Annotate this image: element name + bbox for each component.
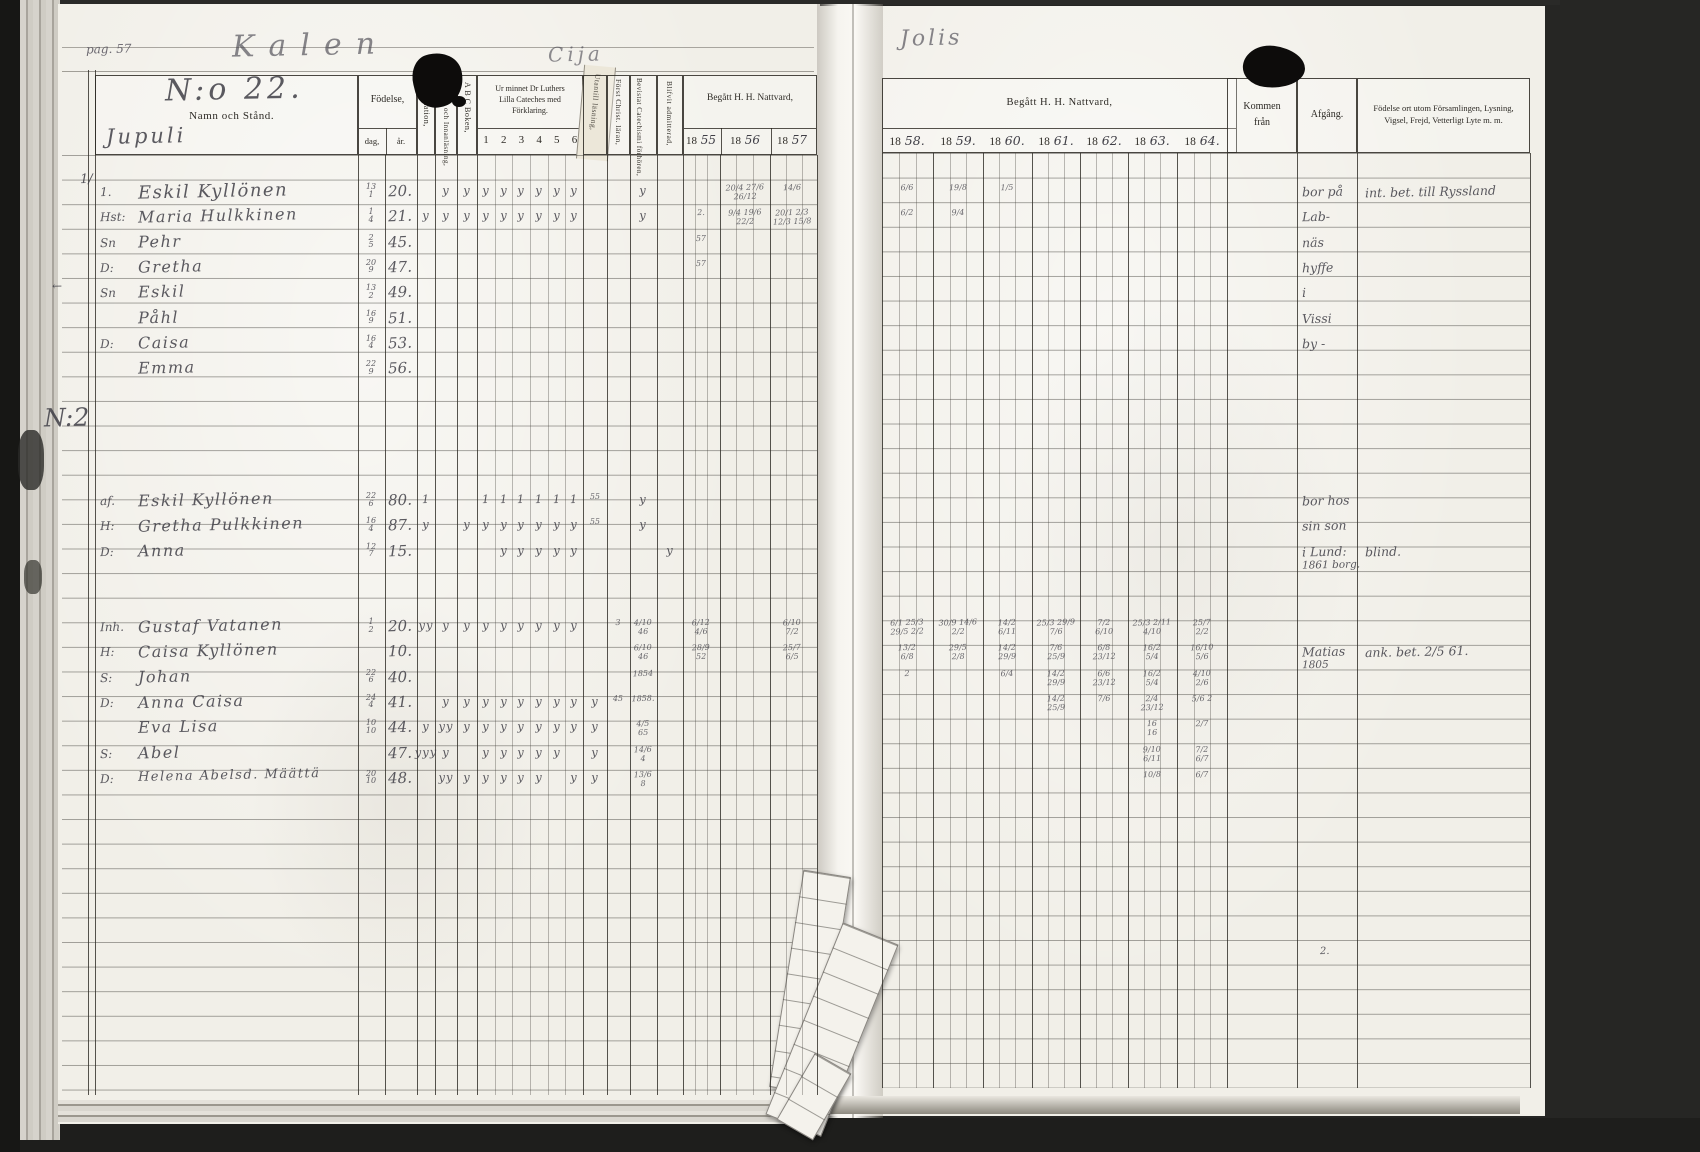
right-communion-year-script: 58. <box>901 133 925 148</box>
communion-date: 14/229/9 <box>1032 669 1081 688</box>
check-mark: y <box>535 183 543 197</box>
kommen-label-1: Kommen <box>1243 101 1280 112</box>
right-page-bottom-edge <box>820 1096 1520 1114</box>
village-name: Jupuli <box>106 123 187 149</box>
communion-date: 6/4 <box>983 669 1031 679</box>
afgang-label: Afgång. <box>1311 109 1344 120</box>
person-prefix: D: <box>100 696 114 710</box>
right-communion-year-script: 62. <box>1098 133 1122 148</box>
birth-day-value: 12 <box>368 618 373 633</box>
person-name: Påhl <box>138 307 179 327</box>
person-name: Caisa Kyllönen <box>138 640 279 662</box>
admitted-label: Blifvit admitterad, <box>665 81 674 146</box>
check-mark: y <box>570 770 578 784</box>
check-mark: y <box>500 694 508 708</box>
check-mark: y <box>442 618 450 632</box>
communion-date: 13/26/8 <box>883 643 932 662</box>
kommen-label-2: från <box>1254 117 1270 128</box>
margin-mark: N:2 <box>44 403 90 433</box>
communion-date: 6/6 <box>883 183 931 193</box>
birth-year-value: 41. <box>388 692 412 711</box>
communion-date: 20/4 27/626/12 <box>721 183 770 202</box>
birth-day-value: 229 <box>366 360 376 375</box>
check-mark: y <box>482 694 490 708</box>
birth-label: Födelse, <box>371 94 405 105</box>
afgang-note-2: 1805 <box>1302 659 1329 672</box>
check-mark: y <box>500 744 508 758</box>
afgang-note: Vissi <box>1302 310 1332 326</box>
catechism-subcolumn-number: 6 <box>572 134 578 146</box>
birth-year-value: 20. <box>388 182 412 201</box>
afgang-note: bor hos <box>1302 493 1350 509</box>
communion-date: 14/26/11 <box>983 618 1032 637</box>
person-prefix: D: <box>100 544 114 558</box>
check-mark: y <box>553 719 561 733</box>
birth-column-header: Födelse, dag, år. <box>358 75 417 155</box>
column-line <box>477 155 478 1095</box>
communion-date: 1616 <box>1128 719 1177 738</box>
check-mark: y <box>535 618 543 632</box>
subcolumn-line <box>565 155 566 1095</box>
communion-date: 7/26/10 <box>1080 618 1129 637</box>
column-line <box>385 155 386 1095</box>
column-line <box>88 70 89 1095</box>
check-mark: y <box>463 719 471 733</box>
afgang-note: bor på <box>1302 184 1343 200</box>
person-name: Johan <box>138 666 192 686</box>
check-mark: 1 <box>535 492 544 506</box>
check-mark: y <box>570 183 578 197</box>
left-communion-year: 18 57 <box>777 133 807 147</box>
person-prefix: S: <box>100 670 113 684</box>
check-mark: y <box>500 719 508 733</box>
right-communion-year: 18 64. <box>1184 133 1219 148</box>
right-communion-year: 18 62. <box>1086 133 1121 148</box>
communion-date: 55 <box>578 518 612 528</box>
right-communion-year: 18 59. <box>940 133 975 148</box>
birth-year-value: 56. <box>388 359 412 378</box>
check-mark: y <box>535 770 543 784</box>
afgang-note: Matias <box>1302 644 1345 660</box>
birth-day-value: 25 <box>368 234 373 249</box>
birth-day-label: dag, <box>365 136 379 146</box>
birth-year-value: 87. <box>388 516 412 535</box>
left-page <box>58 4 820 1124</box>
check-mark: y <box>463 618 471 632</box>
first-christ-column-header: Först Christ. läran, <box>607 75 630 155</box>
check-mark: y <box>517 719 525 733</box>
catechism-subcolumn-number: 3 <box>519 134 525 146</box>
birth-year-value: 44. <box>388 718 412 737</box>
check-mark: y <box>591 719 599 733</box>
check-mark: 1 <box>422 492 431 506</box>
communion-date: 9/4 19/622/2 <box>721 208 770 227</box>
person-prefix: Sn <box>100 286 116 300</box>
catechism-subcolumn-number: 4 <box>536 134 542 146</box>
column-line <box>1227 153 1228 1088</box>
left-communion-year: 18 55 <box>686 133 716 147</box>
check-mark: 1 <box>553 492 562 506</box>
communion-date: 30/9 14/62/2 <box>934 618 983 637</box>
person-prefix: H: <box>100 645 115 659</box>
subcolumn-line <box>530 155 531 1095</box>
person-name: Eva Lisa <box>138 716 219 737</box>
column-line <box>95 70 96 1095</box>
memory-column-header <box>583 75 607 155</box>
right-communion-year-script: 60. <box>1001 133 1025 148</box>
remark-note: blind. <box>1365 543 1401 559</box>
left-page-bottom-edge <box>58 1100 820 1122</box>
name-column-label: Namn och Stånd. <box>189 110 274 122</box>
check-mark: yy <box>418 618 433 633</box>
check-mark: y <box>535 542 543 556</box>
check-mark: y <box>422 719 430 733</box>
column-line <box>817 155 818 1095</box>
attended-label: Bevistat Catechismi förhören, <box>635 78 643 176</box>
birth-day-value: 14 <box>368 208 373 223</box>
check-mark: y <box>482 618 490 632</box>
communion-date: 20/1 2/312/3 15/8 <box>768 208 817 227</box>
person-name: Gretha Pulkkinen <box>138 514 304 536</box>
right-communion-year-script: 64. <box>1196 133 1220 148</box>
check-mark: y <box>553 618 561 632</box>
margin-mark: ← <box>52 279 62 293</box>
communion-date: 6/7 <box>1178 770 1226 780</box>
check-mark: y <box>463 183 471 197</box>
column-line <box>583 155 584 1095</box>
check-mark: y <box>517 183 525 197</box>
birth-year-value: 48. <box>388 768 412 787</box>
catechism-subcolumn-number: 2 <box>501 134 507 146</box>
subcolumn-line <box>512 155 513 1095</box>
column-line <box>457 155 458 1095</box>
check-mark: y <box>591 694 599 708</box>
birth-year-value: 80. <box>388 491 412 510</box>
page-stack-notch <box>18 430 44 490</box>
admitted-column-header: Blifvit admitterad, <box>657 75 683 155</box>
birth-year-value: 53. <box>388 333 412 352</box>
attended-column-header: Bevistat Catechismi förhören, <box>630 75 657 155</box>
check-mark: y <box>482 719 490 733</box>
check-mark: y <box>570 542 578 556</box>
afgang-note: i Lund: <box>1302 543 1347 559</box>
check-mark: y <box>482 744 490 758</box>
person-prefix: af. <box>100 494 115 508</box>
right-communion-year: 18 58. <box>889 133 924 148</box>
column-line <box>1297 153 1298 1088</box>
person-name: Gretha <box>138 256 204 276</box>
left-communion-year-script: 55 <box>697 133 716 147</box>
page-stack-notch2 <box>24 560 42 594</box>
remark-note: int. bet. till Ryssland <box>1365 183 1496 201</box>
subcolumn-line <box>495 155 496 1095</box>
communion-date: 6/124/6 <box>677 618 726 637</box>
person-prefix: D: <box>100 337 114 351</box>
check-mark: y <box>535 517 543 531</box>
communion-date: 14/64 <box>626 745 661 763</box>
abc-label: A B C Boken, <box>463 82 472 133</box>
communion-date: 13/68 <box>626 770 661 788</box>
communion-date: 16/25/4 <box>1128 669 1177 688</box>
check-mark: y <box>666 542 674 556</box>
person-prefix: Hst: <box>100 210 126 225</box>
scanned-parish-register: pag. 57 Kalen Cija Jolis Namn och Stånd.… <box>0 0 1700 1152</box>
birth-year-value: 20. <box>388 617 412 636</box>
check-mark: y <box>570 517 578 531</box>
birth-year-value: 45. <box>388 232 412 251</box>
birth-year-label: år. <box>397 136 405 146</box>
communion-date: 1854 <box>626 669 660 679</box>
communion-date: 6/823/12 <box>1080 643 1129 662</box>
communion-date: 1/5 <box>983 183 1031 193</box>
communion-date: 7/6 <box>1080 694 1128 704</box>
check-mark: y <box>639 492 647 506</box>
check-mark: y <box>500 183 508 197</box>
notes-label-2: Vigsel, Frejd, Vetterligt Lyte m. m. <box>1384 115 1503 125</box>
birth-year-value: 47. <box>388 743 412 762</box>
person-name: Pehr <box>138 231 182 251</box>
check-mark: y <box>517 744 525 758</box>
birth-day-value: 131 <box>366 183 376 198</box>
check-mark: y <box>535 719 543 733</box>
birth-day-value: 127 <box>366 543 376 558</box>
check-mark: y <box>442 744 450 758</box>
check-mark: y <box>500 208 508 222</box>
person-name: Eskil <box>138 282 186 302</box>
person-prefix: Sn <box>100 235 116 249</box>
check-mark: y <box>535 208 543 222</box>
check-mark: y <box>422 208 430 222</box>
communion-date: 29/52/8 <box>934 643 983 662</box>
right-communion-year-script: 59. <box>952 133 976 148</box>
check-mark: y <box>553 694 561 708</box>
check-mark: y <box>500 517 508 531</box>
check-mark: y <box>517 618 525 632</box>
check-mark: y <box>553 183 561 197</box>
left-communion-year: 18 56 <box>730 133 760 147</box>
birth-day-value: 1010 <box>366 719 376 734</box>
check-mark: y <box>535 694 543 708</box>
right-communion-year: 18 60. <box>989 133 1024 148</box>
check-mark: y <box>463 517 471 531</box>
right-communion-year-script: 61. <box>1050 133 1074 148</box>
catechism-label-1: Ur minnet Dr Luthers <box>495 84 565 93</box>
right-communion-year-script: 63. <box>1146 133 1170 148</box>
person-name: Anna <box>138 540 186 560</box>
check-mark: y <box>591 770 599 784</box>
check-mark: y <box>482 517 490 531</box>
check-mark: yy <box>438 719 453 734</box>
check-mark: y <box>442 183 450 197</box>
notes-column-header: Födelse ort utom Församlingen, Lysning, … <box>1357 78 1530 153</box>
check-mark: y <box>442 208 450 222</box>
left-communion-year-script: 56 <box>741 133 760 147</box>
check-mark: y <box>553 542 561 556</box>
check-mark: y <box>570 719 578 733</box>
communion-date: 4/1046 <box>626 618 661 636</box>
check-mark: y <box>553 517 561 531</box>
communion-date: 19/8 <box>934 183 982 193</box>
subcolumn-line <box>736 155 737 1095</box>
left-communion-label: Begått H. H. Nattvard, <box>707 93 793 103</box>
page-title-left: Kalen <box>232 26 390 64</box>
check-mark: y <box>517 208 525 222</box>
birth-year-value: 15. <box>388 541 412 560</box>
catechism-column-header: Ur minnet Dr Luthers Lilla Cateches med … <box>477 75 583 155</box>
person-prefix: Inh. <box>100 620 124 634</box>
check-mark: y <box>535 744 543 758</box>
birth-day-value: 226 <box>366 669 376 684</box>
communion-date: 6/1 25/329/5 2/2 <box>883 618 932 637</box>
check-mark: y <box>442 694 450 708</box>
check-mark: 1 <box>517 492 526 506</box>
book-left-edge <box>0 0 20 1152</box>
subcolumn-line <box>753 155 754 1095</box>
remark-note: ank. bet. 2/5 61. <box>1365 643 1469 660</box>
check-mark: y <box>482 770 490 784</box>
communion-date: 55 <box>578 492 612 502</box>
check-mark: y <box>500 770 508 784</box>
birth-year-value: 51. <box>388 308 412 327</box>
check-mark: 1 <box>500 492 509 506</box>
birth-day-value: 132 <box>366 284 376 299</box>
communion-date: 1858. <box>626 694 660 704</box>
communion-date: 10/8 <box>1128 770 1176 780</box>
right-communion-label: Begått H. H. Nattvard, <box>1006 97 1112 108</box>
check-mark: y <box>500 542 508 556</box>
right-communion-year: 18 61. <box>1038 133 1073 148</box>
communion-date: 6/107/2 <box>768 618 817 637</box>
birth-day-value: 209 <box>366 259 376 274</box>
afgang-note: näs <box>1302 234 1324 249</box>
check-mark: y <box>639 517 647 531</box>
check-mark: y <box>517 517 525 531</box>
birth-day-value: 169 <box>366 310 376 325</box>
person-name: Eskil Kyllönen <box>138 489 274 511</box>
birth-day-value: 226 <box>366 492 376 507</box>
communion-date: 9/106/11 <box>1128 745 1177 764</box>
communion-date: 28/952 <box>677 643 726 662</box>
communion-date: 25/72/2 <box>1178 618 1227 637</box>
check-mark: y <box>517 542 525 556</box>
right-communion-year: 18 63. <box>1134 133 1169 148</box>
communion-date: 7/625/9 <box>1032 643 1081 662</box>
check-mark: y <box>517 770 525 784</box>
check-mark: y <box>570 618 578 632</box>
column-line <box>435 155 436 1095</box>
page-title-mid: Cija <box>548 41 604 66</box>
page-title-right: Jolis <box>900 25 963 51</box>
check-mark: y <box>639 208 647 222</box>
check-mark: yyy <box>415 744 438 759</box>
afgang-note: sin son <box>1302 518 1347 534</box>
page-number: pag. 57 <box>86 42 132 57</box>
check-mark: y <box>570 694 578 708</box>
communion-date: 2/423/12 <box>1128 694 1177 713</box>
left-communion-year-script: 57 <box>788 133 807 147</box>
person-name: Maria Hulkkinen <box>138 205 298 227</box>
check-mark: y <box>517 694 525 708</box>
communion-date: 6/623/12 <box>1080 669 1129 688</box>
communion-date: 25/3 2/114/10 <box>1128 618 1177 637</box>
person-prefix: D: <box>100 261 114 275</box>
check-mark: yy <box>438 770 453 785</box>
check-mark: y <box>570 208 578 222</box>
person-prefix: H: <box>100 519 115 533</box>
margin-mark: 1/ <box>80 172 93 187</box>
communion-date: 14/229/9 <box>983 643 1032 662</box>
birth-year-value: 47. <box>388 257 412 276</box>
check-mark: y <box>463 694 471 708</box>
check-mark: 1 <box>482 492 491 506</box>
ink-blot-left-header-small <box>452 96 466 107</box>
birth-year-value: 21. <box>388 207 412 226</box>
top-rule-1 <box>62 47 814 48</box>
birth-year-value: 49. <box>388 283 412 302</box>
check-mark: y <box>500 618 508 632</box>
catechism-subcolumn-number: 5 <box>554 134 560 146</box>
afgang-note: hyffe <box>1302 260 1334 276</box>
communion-date: 2 <box>883 669 931 679</box>
birth-day-value: 244 <box>366 694 376 709</box>
communion-date: 25/76/5 <box>768 643 817 662</box>
communion-date: 14/225/9 <box>1032 694 1081 713</box>
check-mark: y <box>482 208 490 222</box>
afgang-column-header: Afgång. <box>1297 78 1357 153</box>
birth-day-value: 164 <box>366 517 376 532</box>
kommen-column-header: Kommen från <box>1227 78 1297 153</box>
catechism-subcolumn-number: 1 <box>483 134 489 146</box>
person-name: Anna Caisa <box>138 691 245 712</box>
communion-date: 6/1046 <box>626 644 661 662</box>
person-name: Caisa <box>138 332 191 352</box>
column-line <box>358 155 359 1095</box>
person-name: Emma <box>138 357 196 377</box>
column-line <box>1530 153 1531 1088</box>
afgang-note: i <box>1302 285 1306 300</box>
communion-date: 57 <box>677 259 725 269</box>
birth-day-value: 164 <box>366 335 376 350</box>
check-mark: y <box>482 183 490 197</box>
communion-date: 25/3 29/97/6 <box>1032 618 1081 637</box>
communion-date: 57 <box>677 234 725 244</box>
check-mark: y <box>422 517 430 531</box>
person-name: Eskil Kyllönen <box>138 179 289 203</box>
subcolumn-line <box>548 155 549 1095</box>
person-name: Gustaf Vatanen <box>138 614 283 636</box>
afgang-note-2: 1861 borg. <box>1302 558 1360 571</box>
check-mark: y <box>463 770 471 784</box>
catechism-label-3: Förklaring. <box>512 106 548 115</box>
birth-year-value: 10. <box>388 642 412 661</box>
communion-date: 7/26/7 <box>1178 745 1227 764</box>
communion-date: 16/105/6 <box>1178 643 1227 662</box>
check-mark: y <box>639 183 647 197</box>
check-mark: y <box>463 208 471 222</box>
check-mark: y <box>553 208 561 222</box>
check-mark: y <box>591 744 599 758</box>
birth-day-value: 2010 <box>366 770 376 785</box>
communion-date: 16/25/4 <box>1128 643 1177 662</box>
margin-mark: 2. <box>1320 946 1330 957</box>
household-number: N:o 22. <box>165 71 304 109</box>
afgang-note: by - <box>1302 336 1326 351</box>
communion-date: 4/565 <box>626 720 661 738</box>
column-line <box>1357 153 1358 1088</box>
right-page <box>820 6 1545 1116</box>
notes-label-1: Födelse ort utom Församlingen, Lysning, <box>1373 103 1513 113</box>
person-prefix: 1. <box>100 185 112 199</box>
